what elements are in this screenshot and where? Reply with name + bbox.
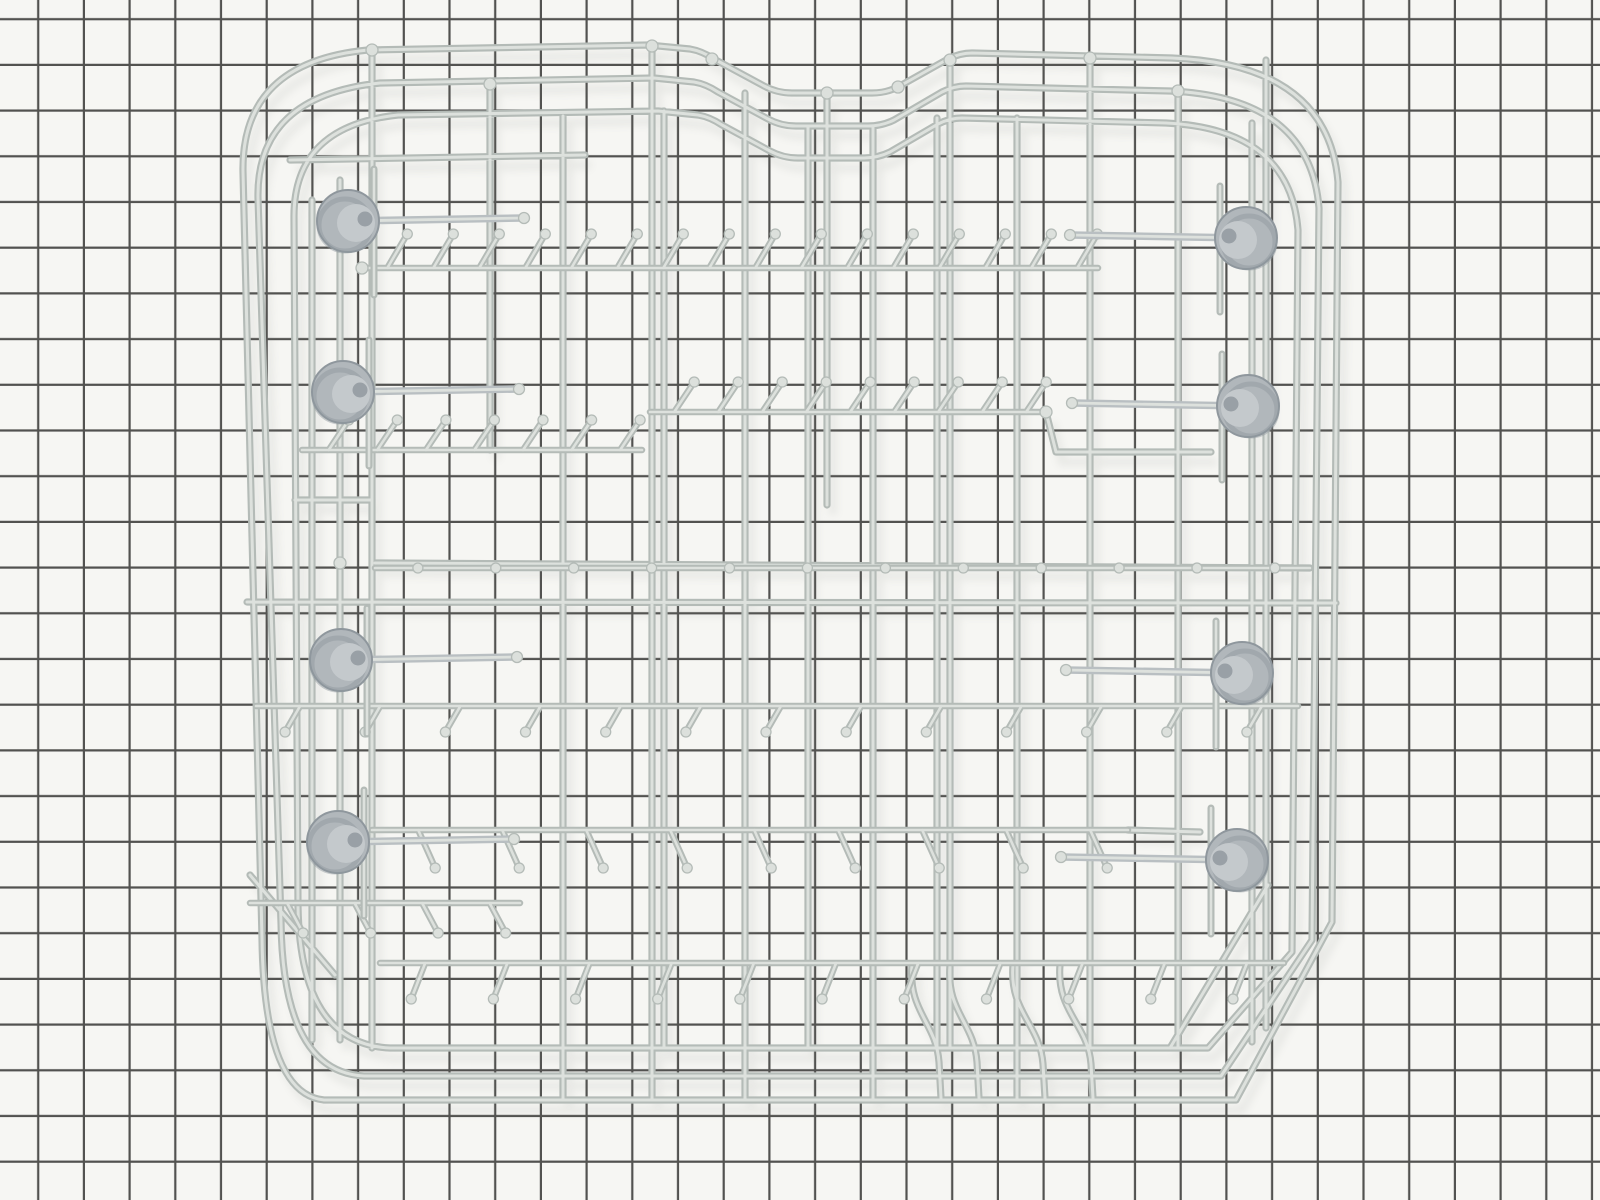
tine-ball-tip [899,994,909,1004]
tine-ball-tip [441,415,451,425]
tine-ball-tip [1102,863,1112,873]
tine-ball-tip [817,994,827,1004]
tine-ball-tip [540,229,550,239]
tine-ball-tip [777,377,787,387]
tine-ball-tip [1046,229,1056,239]
tine-ball-tip [880,563,890,573]
tine-ball-tip [1192,563,1202,573]
tine-ball-tip [982,994,992,1004]
tine-ball-tip [1082,727,1092,737]
tine-ball-tip [433,928,443,938]
tine-ball-tip [997,377,1007,387]
tine-ball-tip [862,229,872,239]
wheel-hub [358,212,373,227]
axle-ball-end [1067,398,1078,409]
tine-ball-tip [1114,563,1124,573]
axle-ball-end [512,652,523,663]
tine-ball-tip [514,863,524,873]
tine-ball-tip [653,994,663,1004]
tine-ball-tip [647,563,657,573]
axle-ball-end [514,384,525,395]
wheel-hub [1222,229,1237,244]
tine-ball-tip [934,863,944,873]
tine-ball-tip [587,415,597,425]
tine-ball-tip [489,415,499,425]
axle-ball-end [1056,852,1067,863]
tine-ball-tip [1242,727,1252,737]
wheel-hub [353,383,368,398]
wheel-hub [348,833,363,848]
tine-ball-tip [1036,563,1046,573]
tine-ball-tip [413,563,423,573]
tine-ball-tip [816,229,826,239]
tine-ball-tip [280,727,290,737]
wheel-hub [351,651,366,666]
wire-joint-ball [821,87,833,99]
tine-ball-tip [586,229,596,239]
tine-ball-tip [908,229,918,239]
tine-ball-tip [298,928,308,938]
tine-ball-tip [954,229,964,239]
tine-ball-tip [821,377,831,387]
wheel-hub [1218,664,1233,679]
tine-ball-tip [735,994,745,1004]
wire-joint-ball [356,262,368,274]
tine-ball-tip [766,863,776,873]
tine-ball-tip [635,415,645,425]
tine-ball-tip [958,563,968,573]
wire-joint-ball [1172,85,1184,97]
dishwasher-rack-photo [0,0,1600,1200]
tine-ball-tip [1228,994,1238,1004]
tine-ball-tip [406,994,416,1004]
wheel-hub [1224,397,1239,412]
axle-ball-end [1065,230,1076,241]
wire-joint-ball [1040,406,1052,418]
tine-ball-tip [491,563,501,573]
tine-ball-tip [598,863,608,873]
tine-ball-tip [733,377,743,387]
wire-joint-ball [366,44,378,56]
tine-ball-tip [392,415,402,425]
tine-ball-tip [571,994,581,1004]
wire-joint-ball [706,53,718,65]
tine-ball-tip [494,229,504,239]
product-photo-stage [0,0,1600,1200]
tine-ball-tip [841,727,851,737]
tine-ball-tip [802,563,812,573]
tine-ball-tip [761,727,771,737]
wire-joint-ball [646,40,658,52]
tine-ball-tip [1146,994,1156,1004]
axle-ball-end [1061,665,1072,676]
tine-ball-tip [1162,727,1172,737]
tine-ball-tip [538,415,548,425]
tine-ball-tip [682,863,692,873]
wire-joint-ball [334,557,346,569]
tine-ball-tip [402,229,412,239]
tine-ball-tip [850,863,860,873]
tine-ball-tip [921,727,931,737]
tine-ball-tip [632,229,642,239]
tine-ball-tip [865,377,875,387]
tine-ball-tip [448,229,458,239]
axle-ball-end [509,834,520,845]
tine-ball-tip [689,377,699,387]
wire-joint-ball [944,54,956,66]
tine-ball-tip [678,229,688,239]
wheel-hub [1213,851,1228,866]
tine-ball-tip [501,928,511,938]
tine-ball-tip [724,229,734,239]
tine-ball-tip [1018,863,1028,873]
tine-ball-tip [1002,727,1012,737]
tine-ball-tip [430,863,440,873]
tine-ball-tip [440,727,450,737]
tine-ball-tip [366,928,376,938]
tine-ball-tip [1270,563,1280,573]
wire-joint-ball [1084,52,1096,64]
tine-ball-tip [953,377,963,387]
tine-ball-tip [681,727,691,737]
tine-ball-tip [770,229,780,239]
tine-ball-tip [1000,229,1010,239]
tine-ball-tip [725,563,735,573]
tine-ball-tip [1041,377,1051,387]
tine-ball-tip [601,727,611,737]
tine-ball-tip [488,994,498,1004]
tine-ball-tip [521,727,531,737]
wire-joint-ball [892,81,904,93]
tine-ball-tip [909,377,919,387]
wire-joint-ball [484,78,496,90]
tine-ball-tip [1064,994,1074,1004]
axle-ball-end [519,213,530,224]
tine-ball-tip [569,563,579,573]
